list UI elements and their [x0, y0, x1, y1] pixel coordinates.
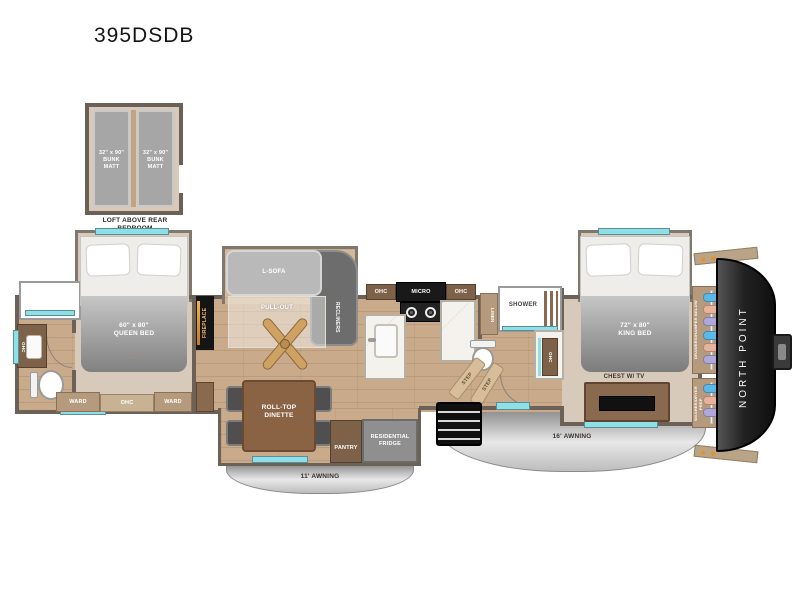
faucet-icon [368, 338, 376, 342]
hitch-pin [778, 344, 786, 360]
vanity-counter-edge [538, 338, 541, 376]
entry-door-window [496, 402, 530, 410]
dinette-window [252, 456, 308, 463]
loft-area-label: LOFT [118, 355, 154, 363]
pillow [85, 243, 130, 277]
king-bed: 72" x 80" KING BED [580, 236, 690, 372]
stove-icon [400, 302, 442, 322]
ohc-cabinet: OHC [366, 284, 396, 300]
king-slide-window [598, 228, 670, 235]
ohc-label: OHC [367, 289, 395, 296]
marker-light-icon [701, 257, 705, 261]
micro-label: MICRO [397, 289, 445, 296]
linen-label: LINEN [485, 300, 495, 330]
linen-cabinet: LINEN [480, 293, 498, 335]
ohc-label: OHC [101, 400, 153, 407]
ward-cabinet: WARD [56, 392, 100, 412]
loft-bunk-mattress: 32" x 90" BUNK MATT [137, 110, 174, 207]
king-bed-label: 72" x 80" KING BED [581, 322, 689, 338]
wardrobe-label: DRAWERS/HAMPER BELOW [693, 291, 702, 369]
bunk-matt-label: 32" x 90" BUNK MATT [95, 150, 128, 171]
pantry-label: PANTRY [331, 445, 361, 452]
queen-bed-label: 60" x 80" QUEEN BED [81, 322, 187, 338]
awning-11ft: 11' AWNING [226, 464, 414, 494]
loft-bunk-divider [131, 110, 136, 207]
ohc-cabinet: OHC [446, 284, 476, 300]
rear-vanity-ohc-label: OHC [19, 337, 26, 357]
recliners-label: RECLINERS [329, 290, 340, 344]
bunk-matt-label: 32" x 90" BUNK MATT [139, 150, 172, 171]
shower-door [544, 291, 558, 327]
mid-vanity-ohc-label: OHC [545, 346, 553, 368]
residential-fridge: RESIDENTIAL FRIDGE [362, 419, 418, 463]
chest-with-tv [584, 382, 670, 422]
kitchen-counter [440, 300, 476, 362]
brand-label: NORTH POINT [738, 282, 756, 432]
entry-steps-icon [436, 402, 482, 446]
pillow [637, 243, 683, 277]
rear-wall-window [13, 330, 19, 364]
fan-hub [280, 339, 290, 349]
pillow [136, 243, 181, 277]
cabinet [196, 382, 214, 412]
mid-shower: SHOWER [498, 286, 562, 332]
awning-11ft-label: 11' AWNING [227, 473, 413, 481]
pillow [585, 243, 631, 277]
marker-light-icon [711, 256, 715, 260]
shower-label: SHOWER [502, 302, 544, 310]
dinette-label: ROLL-TOP DINETTE [244, 404, 314, 420]
hitch-icon [772, 334, 792, 370]
sink-icon [374, 324, 398, 358]
queen-slide-window [95, 228, 169, 235]
fireplace: FIREPLACE [196, 296, 214, 350]
ward-cabinet: WARD [154, 392, 192, 412]
washer-prep-label: WASHER/DRYER PREP [693, 381, 702, 427]
fireplace-label: FIREPLACE [202, 300, 212, 346]
toilet-icon [30, 372, 38, 398]
ward-label: WARD [155, 399, 191, 406]
page-title: 395DSDB [94, 24, 194, 48]
ohc-cabinet: OHC [100, 394, 154, 412]
sink-icon [26, 335, 42, 359]
front-cap: NORTH POINT [716, 258, 776, 452]
ward-label: WARD [57, 399, 99, 406]
king-bed-blanket: 72" x 80" KING BED [581, 296, 689, 372]
loft-door-opening [179, 165, 187, 193]
pantry: PANTRY [330, 420, 362, 463]
ceiling-fan-icon [253, 312, 317, 376]
dinette-table: ROLL-TOP DINETTE [242, 380, 316, 452]
mid-bath-vanity: OHC [534, 330, 564, 380]
rear-bath-vanity: OHC [17, 324, 47, 368]
marker-light-icon [711, 451, 715, 455]
chest-tv-label: CHEST W/ TV [594, 374, 654, 382]
burner-icon [406, 307, 417, 318]
rear-shower-glass [25, 310, 75, 316]
floorplan-canvas: 395DSDB 32" x 90" BUNK MATT 32" x 90" BU… [0, 0, 800, 600]
fireplace-glow [197, 301, 200, 345]
loft-bunk-mattress: 32" x 90" BUNK MATT [93, 110, 130, 207]
burner-icon [425, 307, 436, 318]
l-sofa-label: L-SOFA [228, 269, 320, 277]
marker-light-icon [701, 450, 705, 454]
ohc-label: OHC [447, 289, 475, 296]
l-sofa: L-SOFA [226, 250, 322, 296]
queen-bed: 60" x 80" QUEEN BED [80, 236, 188, 372]
microwave: MICRO [396, 282, 446, 302]
fridge-label: RESIDENTIAL FRIDGE [364, 434, 416, 448]
tv-icon [599, 396, 655, 411]
kitchen-island [364, 314, 406, 380]
